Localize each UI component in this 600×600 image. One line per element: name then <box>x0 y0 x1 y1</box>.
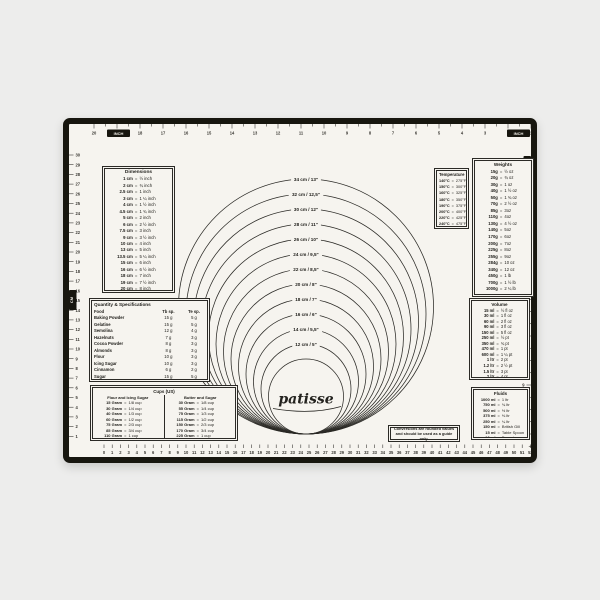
table-cell: 225 Gram <box>168 433 195 439</box>
product-photo: 34 cm / 13"32 cm / 12,5"30 cm / 12"28 cm… <box>0 0 600 600</box>
circle-size-label: 16 cm / 6" <box>295 312 317 317</box>
volume-table: Volume 15 ml=½ fl oz30 ml=1 fl oz60 ml=2… <box>469 298 530 380</box>
ruler-number: 13 <box>208 450 213 455</box>
ruler-number: 28 <box>76 172 81 177</box>
cups-us-table: Cups (US) Flour and Icing Sugar 15 Gram=… <box>90 385 238 441</box>
ruler-number: 17 <box>76 279 81 284</box>
ruler-number: 2 <box>119 450 122 455</box>
inch-tag-label: INCH <box>114 131 124 136</box>
inch-tag-label: INCH <box>514 131 524 136</box>
table-cell: 10 ml <box>476 435 496 438</box>
weights-table: Weights 15g=½ oz20g=¾ oz30g=1 oz40g=1 ½ … <box>472 158 534 297</box>
ruler-number: 5 <box>144 450 147 455</box>
ruler-number: 13 <box>76 318 81 323</box>
table-cell: = <box>452 221 454 227</box>
ruler-number: 8 <box>76 366 79 371</box>
weights-rows: 15g=½ oz20g=¾ oz30g=1 oz40g=1 ½ oz50g=1 … <box>477 169 529 293</box>
ruler-number: 47 <box>487 450 492 455</box>
table-row: 1000g=2 ¼ lb <box>477 286 529 293</box>
ruler-number: 27 <box>76 182 81 187</box>
table-cell: 4 pt <box>501 374 525 378</box>
ruler-number: 29 <box>76 162 81 167</box>
table-row: 240°C=475°F <box>439 221 464 227</box>
ruler-number: 30 <box>348 450 353 455</box>
ruler-number: 18 <box>138 131 143 136</box>
ruler-number: 3 <box>76 415 79 420</box>
ruler-number: 23 <box>290 450 295 455</box>
measurement-circle <box>224 269 389 434</box>
table-row: 225 Gram=1 cup <box>168 433 234 439</box>
ruler-number: 34 <box>381 450 386 455</box>
ruler-number: 20 <box>92 131 97 136</box>
table-cell: = <box>124 433 126 439</box>
circle-size-label: 20 cm / 8" <box>295 282 317 287</box>
ruler-number: 50 <box>512 450 517 455</box>
ruler-number: 39 <box>422 450 427 455</box>
ruler-number: 13 <box>253 131 258 136</box>
ruler-number: 40 <box>430 450 435 455</box>
conversions-note-inner: Conversions are rounded values and shoul… <box>390 427 458 440</box>
ruler-number: 1 <box>530 131 531 136</box>
cups-group-flour: Flour and Icing Sugar 15 Gram=1/8 cup30 … <box>95 395 161 439</box>
ruler-number: 41 <box>438 450 443 455</box>
measurement-circle <box>261 344 351 434</box>
ruler-number: 4 <box>76 405 79 410</box>
ruler-number: 19 <box>76 259 81 264</box>
volume-table-inner: Volume 15 ml=½ fl oz30 ml=1 fl oz60 ml=2… <box>471 300 528 378</box>
cups-table-inner: Cups (US) Flour and Icing Sugar 15 Gram=… <box>92 387 236 439</box>
circle-size-label: 18 cm / 7" <box>295 297 317 302</box>
ruler-number: 5 <box>438 131 441 136</box>
quantity-rows: Food Tb sp. Te sp. Baking Powder15 g5 gG… <box>94 309 205 380</box>
ruler-number: 35 <box>389 450 394 455</box>
volume-rows: 15 ml=½ fl oz30 ml=1 fl oz60 ml=2 fl oz9… <box>474 308 525 378</box>
ruler-number: 43 <box>454 450 459 455</box>
ruler-number: 37 <box>405 450 410 455</box>
ruler-number: 9 <box>76 356 79 361</box>
patisse-logo: patisse <box>278 392 333 408</box>
ruler-number: 4 <box>461 131 464 136</box>
ruler-number: 5 <box>76 395 79 400</box>
table-cell: = <box>197 433 199 439</box>
ruler-number: 20 <box>266 450 271 455</box>
table-cell: = <box>496 374 498 378</box>
ruler-number: 8 <box>369 131 372 136</box>
table-cell: 475°F <box>456 221 466 227</box>
cups-body: Flour and Icing Sugar 15 Gram=1/8 cup30 … <box>95 395 233 439</box>
ruler-number: 16 <box>184 131 189 136</box>
ruler-number: 46 <box>479 450 484 455</box>
fluids-rows: 1000 ml=1 ltr750 ml=¾ ltr500 ml=½ ltr375… <box>476 397 525 439</box>
table-cell: 20 cm <box>107 286 133 291</box>
ruler-number: 28 <box>331 450 336 455</box>
ruler-number: 12 <box>200 450 205 455</box>
ruler-number: 14 <box>217 450 222 455</box>
fluids-table-inner: Fluids 1000 ml=1 ltr750 ml=¾ ltr500 ml=½… <box>473 389 528 438</box>
quantity-specifications-table: Quantity & Specifications Food Tb sp. Te… <box>89 298 210 382</box>
table-cell: 1000g <box>477 286 498 293</box>
ruler-number: 29 <box>340 450 345 455</box>
temperature-table-inner: Temperature 140°C=275°F150°C=300°F160°C=… <box>436 170 467 227</box>
table-cell: Desert Spoon <box>502 435 525 438</box>
ruler-number: 6 <box>76 385 79 390</box>
table-row: 20 cm=8 inch <box>107 286 170 291</box>
ruler-number: 25 <box>76 201 81 206</box>
ruler-number: 15 <box>207 131 212 136</box>
ruler-number: 3 <box>484 131 487 136</box>
ruler-number: 22 <box>282 450 287 455</box>
table-cell: 2 ¼ lb <box>504 286 529 293</box>
ruler-number: 25 <box>307 450 312 455</box>
ruler-number: 48 <box>495 450 500 455</box>
ruler-number: 17 <box>161 131 166 136</box>
dimensions-table: Dimensions 1 cm=½ inch2 cm=¾ inch2.5 cm=… <box>102 166 175 293</box>
ruler-number: 11 <box>192 450 197 455</box>
ruler-number: 7 <box>392 131 395 136</box>
ruler-number: 10 <box>322 131 327 136</box>
temperature-rows: 140°C=275°F150°C=300°F160°C=325°F180°C=3… <box>439 178 464 227</box>
circle-size-label: 32 cm / 12,5" <box>292 192 320 197</box>
table-cell: 110 Gram <box>95 433 122 439</box>
ruler-number: 18 <box>76 269 81 274</box>
ruler-number: 10 <box>76 347 81 352</box>
ruler-number: 1 <box>111 450 114 455</box>
ruler-number: 15 <box>225 450 230 455</box>
table-cell: = <box>500 286 503 293</box>
ruler-number: 12 <box>520 456 525 457</box>
table-cell: 8 inch <box>139 286 170 291</box>
ruler-number: 17 <box>241 450 246 455</box>
ruler-number: 6 <box>415 131 418 136</box>
ruler-number: 16 <box>233 450 238 455</box>
ruler-number: 32 <box>364 450 369 455</box>
table-row: 2 ltr=4 pt <box>474 374 525 378</box>
circle-size-label: 12 cm / 5" <box>295 342 317 347</box>
circle-size-label: 26 cm / 10" <box>294 237 318 242</box>
fluids-table: Fluids 1000 ml=1 ltr750 ml=¾ ltr500 ml=½… <box>471 387 530 440</box>
cups-butter-rows: 30 Gram=1/8 cup55 Gram=1/4 cup75 Gram=1/… <box>168 400 234 439</box>
table-row: 10 ml=Desert Spoon <box>476 435 525 438</box>
ruler-number: 19 <box>258 450 263 455</box>
ruler-number: 30 <box>76 153 81 158</box>
circle-size-label: 22 cm / 8,5" <box>293 267 318 272</box>
ruler-number: 8 <box>168 450 171 455</box>
circle-size-label: 14 cm / 5,5" <box>293 327 318 332</box>
ruler-number: 7 <box>76 376 79 381</box>
ruler-number: 26 <box>315 450 320 455</box>
ruler-number: 22 <box>76 230 81 235</box>
ruler-number: 44 <box>463 450 468 455</box>
temperature-table: Temperature 140°C=275°F150°C=300°F160°C=… <box>434 168 469 229</box>
ruler-number: 20 <box>76 250 81 255</box>
note-line-2: and should be used as a guide only. <box>391 431 457 441</box>
ruler-number: 23 <box>76 221 81 226</box>
ruler-number: 9 <box>346 131 349 136</box>
ruler-number: 12 <box>76 327 81 332</box>
ruler-number: 14 <box>230 131 235 136</box>
ruler-number: 45 <box>471 450 476 455</box>
ruler-number: 12 <box>276 131 281 136</box>
divider <box>164 395 165 439</box>
ruler-number: 27 <box>323 450 328 455</box>
cm-tag-label: CM <box>69 296 74 303</box>
ruler-number: 49 <box>504 450 509 455</box>
ruler-number: 42 <box>446 450 451 455</box>
ruler-number: 38 <box>413 450 418 455</box>
ruler-number: 9 <box>177 450 180 455</box>
weights-table-inner: Weights 15g=½ oz20g=¾ oz30g=1 oz40g=1 ½ … <box>474 160 532 295</box>
ruler-number: 0 <box>103 450 106 455</box>
ruler-number: 24 <box>299 450 304 455</box>
table-cell: 240°C <box>439 221 450 227</box>
ruler-number: 24 <box>76 211 81 216</box>
ruler-number: 3 <box>127 450 130 455</box>
table-cell: Sugar <box>94 374 154 380</box>
circle-size-label: 34 cm / 13" <box>294 177 318 182</box>
table-cell: 5 g <box>183 374 205 380</box>
table-cell: 1 cup <box>128 433 160 439</box>
ruler-number: 10 <box>184 450 189 455</box>
ruler-number: 26 <box>76 191 81 196</box>
circle-size-label: 28 cm / 11" <box>294 222 318 227</box>
ruler-number: 4 <box>136 450 139 455</box>
pastry-mat: 34 cm / 13"32 cm / 12,5"30 cm / 12"28 cm… <box>63 118 537 463</box>
cups-group-butter: Butter and Sugar 30 Gram=1/8 cup55 Gram=… <box>168 395 234 439</box>
ruler-number: 33 <box>372 450 377 455</box>
measurement-circle <box>239 299 374 434</box>
ruler-number: 7 <box>160 450 163 455</box>
ruler-number: 1 <box>76 434 79 439</box>
table-row: Sugar15 g5 g <box>94 374 205 380</box>
table-cell: 1 cup <box>201 433 233 439</box>
table-cell: = <box>498 435 500 438</box>
cups-flour-rows: 15 Gram=1/8 cup30 Gram=1/4 cup40 Gram=1/… <box>95 400 161 439</box>
table-cell: 2 ltr <box>474 374 494 378</box>
ruler-number: 52 <box>528 450 531 455</box>
table-cell: = <box>135 286 138 291</box>
dimensions-rows: 1 cm=½ inch2 cm=¾ inch2.5 cm=1 inch3 cm=… <box>107 176 170 291</box>
ruler-number: 36 <box>397 450 402 455</box>
table-cell: 15 g <box>156 374 181 380</box>
ruler-number: 51 <box>520 450 525 455</box>
ruler-number: 21 <box>274 450 279 455</box>
ruler-number: 21 <box>76 240 81 245</box>
ruler-number: 11 <box>299 131 304 136</box>
table-row: 110 Gram=1 cup <box>95 433 161 439</box>
ruler-number: 6 <box>152 450 155 455</box>
conversions-note: Conversions are rounded values and shoul… <box>388 425 460 442</box>
quantity-table-inner: Quantity & Specifications Food Tb sp. Te… <box>91 300 208 380</box>
dimensions-table-inner: Dimensions 1 cm=½ inch2 cm=¾ inch2.5 cm=… <box>104 168 173 291</box>
ruler-number: 11 <box>76 337 81 342</box>
ruler-number: 31 <box>356 450 361 455</box>
ruler-number: 18 <box>249 450 254 455</box>
circle-size-label: 24 cm / 9,5" <box>293 252 318 257</box>
ruler-number: 2 <box>76 424 79 429</box>
circle-size-label: 30 cm / 12" <box>294 207 318 212</box>
